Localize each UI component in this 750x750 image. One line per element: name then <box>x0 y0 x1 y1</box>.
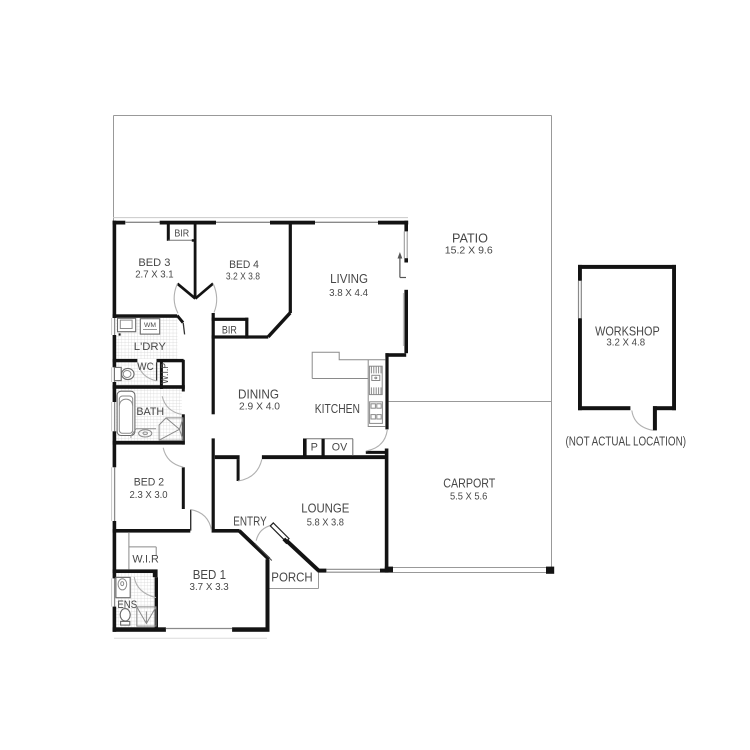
svg-text:BIR: BIR <box>222 325 237 337</box>
svg-text:BED 1: BED 1 <box>193 568 226 582</box>
svg-text:L'DRY: L'DRY <box>134 341 167 353</box>
svg-text:BED 3: BED 3 <box>138 257 170 269</box>
svg-text:2.9 X 4.0: 2.9 X 4.0 <box>239 401 280 412</box>
svg-text:LOUNGE: LOUNGE <box>301 501 349 515</box>
svg-text:2.3 X 3.0: 2.3 X 3.0 <box>130 490 168 501</box>
svg-text:DINING: DINING <box>238 387 279 401</box>
svg-text:CARPORT: CARPORT <box>443 477 495 491</box>
svg-text:ENS: ENS <box>117 599 137 611</box>
svg-text:WM: WM <box>144 322 156 329</box>
svg-text:WC: WC <box>137 361 154 373</box>
svg-text:(NOT ACTUAL LOCATION): (NOT ACTUAL LOCATION) <box>566 434 687 448</box>
svg-text:3.7 X 3.3: 3.7 X 3.3 <box>190 582 229 593</box>
svg-text:ENTRY: ENTRY <box>233 515 267 529</box>
svg-text:BATH: BATH <box>136 406 164 418</box>
svg-text:PORCH: PORCH <box>271 571 312 585</box>
svg-text:15.2 X 9.6: 15.2 X 9.6 <box>445 246 493 257</box>
svg-text:2.7 X 3.1: 2.7 X 3.1 <box>135 269 174 280</box>
svg-text:KITCHEN: KITCHEN <box>315 402 360 416</box>
svg-text:3.8 X 4.4: 3.8 X 4.4 <box>329 288 368 299</box>
svg-text:5.5 X 5.6: 5.5 X 5.6 <box>450 492 487 503</box>
svg-text:3.2 X 3.8: 3.2 X 3.8 <box>226 272 260 283</box>
svg-text:3.2 X 4.8: 3.2 X 4.8 <box>606 338 645 349</box>
svg-text:LIVING: LIVING <box>330 272 368 286</box>
svg-text:PATIO: PATIO <box>452 231 488 245</box>
svg-text:BED 4: BED 4 <box>229 259 259 271</box>
svg-text:W.I.R: W.I.R <box>132 554 159 566</box>
svg-text:BIR: BIR <box>174 229 189 240</box>
svg-text:OV: OV <box>332 442 348 454</box>
svg-text:5.8 X 3.8: 5.8 X 3.8 <box>307 518 344 529</box>
svg-text:WORKSHOP: WORKSHOP <box>595 325 660 339</box>
svg-text:P: P <box>311 442 318 454</box>
svg-text:BED 2: BED 2 <box>134 477 164 489</box>
svg-text:W.I.P: W.I.P <box>160 362 171 383</box>
